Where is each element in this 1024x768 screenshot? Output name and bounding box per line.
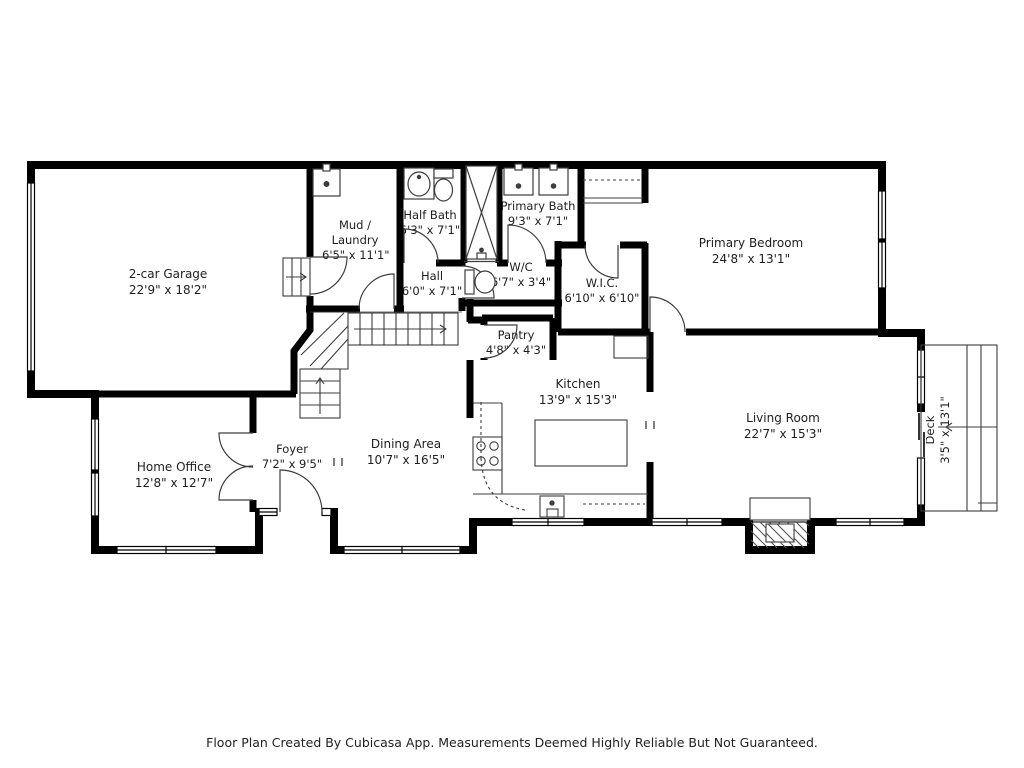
room-name: Deck xyxy=(923,396,938,464)
room-dims: 22'9" x 18'2" xyxy=(129,283,208,299)
room-label-primary-bath: Primary Bath 9'3" x 7'1" xyxy=(501,199,576,229)
room-dims: 7'2" x 9'5" xyxy=(262,457,322,472)
room-name: Mud / Laundry xyxy=(322,218,388,248)
room-name: W.I.C. xyxy=(565,276,640,291)
room-label-garage: 2-car Garage 22'9" x 18'2" xyxy=(129,267,208,299)
room-dims: 4'8" x 4'3" xyxy=(486,343,546,358)
room-name: Half Bath xyxy=(400,208,460,223)
room-label-living-room: Living Room 22'7" x 15'3" xyxy=(744,411,822,443)
room-label-kitchen: Kitchen 13'9" x 15'3" xyxy=(539,377,617,409)
room-name: Foyer xyxy=(262,442,322,457)
room-name: Primary Bedroom xyxy=(699,236,803,252)
room-label-hall: Hall 6'0" x 7'1" xyxy=(402,269,462,299)
room-label-dining-area: Dining Area 10'7" x 16'5" xyxy=(367,437,445,469)
room-name: Home Office xyxy=(135,460,213,476)
room-name: W/C xyxy=(491,260,551,275)
room-dims: 3'5" x 13'1" xyxy=(938,396,953,464)
room-name: Primary Bath xyxy=(501,199,576,214)
room-label-half-bath: Half Bath 5'3" x 7'1" xyxy=(400,208,460,238)
room-label-wic: W.I.C. 6'10" x 6'10" xyxy=(565,276,640,306)
room-name: Pantry xyxy=(486,328,546,343)
room-label-mud-laundry: Mud / Laundry 6'5" x 11'1" xyxy=(322,218,388,264)
room-dims: 5'3" x 7'1" xyxy=(400,223,460,238)
room-dims: 12'8" x 12'7" xyxy=(135,476,213,492)
room-label-primary-bedroom: Primary Bedroom 24'8" x 13'1" xyxy=(699,236,803,268)
room-label-wc: W/C 6'7" x 3'4" xyxy=(491,260,551,290)
room-dims: 24'8" x 13'1" xyxy=(699,252,803,268)
room-dims: 13'9" x 15'3" xyxy=(539,393,617,409)
room-name: Dining Area xyxy=(367,437,445,453)
room-dims: 6'5" x 11'1" xyxy=(322,249,388,264)
room-dims: 9'3" x 7'1" xyxy=(501,214,576,229)
room-label-pantry: Pantry 4'8" x 4'3" xyxy=(486,328,546,358)
room-dims: 6'7" x 3'4" xyxy=(491,275,551,290)
room-name: Hall xyxy=(402,269,462,284)
floor-plan-page: 2-car Garage 22'9" x 18'2" Mud / Laundry… xyxy=(0,0,1024,768)
room-dims: 22'7" x 15'3" xyxy=(744,427,822,443)
room-name: Kitchen xyxy=(539,377,617,393)
room-dims: 6'10" x 6'10" xyxy=(565,291,640,306)
room-labels-layer: 2-car Garage 22'9" x 18'2" Mud / Laundry… xyxy=(0,0,1024,768)
room-label-deck: Deck 3'5" x 13'1" xyxy=(923,396,953,464)
room-name: 2-car Garage xyxy=(129,267,208,283)
room-name: Living Room xyxy=(744,411,822,427)
room-label-home-office: Home Office 12'8" x 12'7" xyxy=(135,460,213,492)
room-dims: 10'7" x 16'5" xyxy=(367,453,445,469)
room-dims: 6'0" x 7'1" xyxy=(402,284,462,299)
room-label-foyer: Foyer 7'2" x 9'5" xyxy=(262,442,322,472)
